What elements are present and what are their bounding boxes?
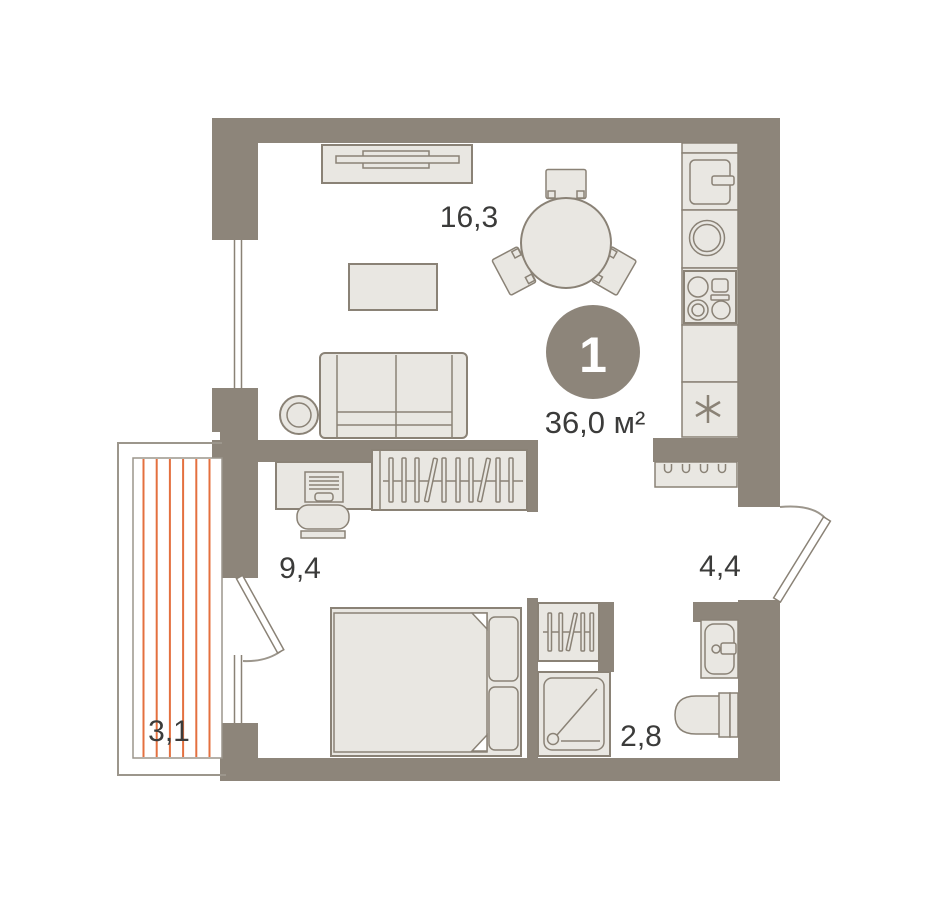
wall-kitchen-hall bbox=[653, 438, 740, 462]
dining-chair-top bbox=[546, 170, 586, 199]
badge-room-count: 1 bbox=[579, 327, 607, 383]
monitor-icon bbox=[305, 472, 343, 502]
wall-right-lower bbox=[738, 600, 780, 781]
bed bbox=[331, 608, 521, 756]
toilet-bowl bbox=[675, 696, 720, 734]
wall-bath-top bbox=[693, 602, 780, 622]
stove-icon bbox=[682, 268, 738, 325]
kitchen-sink-icon bbox=[682, 210, 738, 268]
hallway bbox=[655, 462, 737, 487]
dining-table bbox=[521, 198, 611, 288]
coat-rack bbox=[655, 462, 737, 487]
wall-bedroom-bath bbox=[527, 598, 538, 758]
wall-right-upper bbox=[738, 118, 780, 507]
linen-shelf bbox=[538, 603, 599, 661]
floor-plan-page: 1 36,0 м² 16,3 9,4 4,4 2,8 3,1 bbox=[0, 0, 947, 900]
toilet-icon bbox=[675, 693, 738, 737]
washer-icon bbox=[682, 382, 738, 437]
total-area-label: 36,0 м² bbox=[545, 405, 646, 440]
tv-stand bbox=[322, 145, 472, 183]
toilet-tank bbox=[719, 693, 730, 737]
side-table bbox=[280, 396, 318, 434]
shower bbox=[538, 672, 610, 756]
sofa bbox=[320, 353, 467, 438]
desk-chair-base bbox=[301, 531, 345, 538]
wardrobe bbox=[372, 450, 527, 510]
pillow-top bbox=[489, 617, 518, 681]
balcony-area-label: 3,1 bbox=[148, 715, 190, 748]
kitchen-counter bbox=[682, 325, 738, 382]
coffee-table bbox=[349, 264, 437, 310]
wall-left-top bbox=[212, 118, 258, 240]
bedroom-area-label: 9,4 bbox=[279, 552, 321, 585]
bathroom-area-label: 2,8 bbox=[620, 720, 662, 753]
kitchen-column bbox=[682, 143, 738, 437]
apartment-badge: 1 36,0 м² bbox=[545, 305, 646, 440]
wall-bottom bbox=[220, 758, 780, 781]
wall-shelf-right bbox=[598, 602, 614, 672]
desk-chair bbox=[297, 505, 349, 529]
bed-blanket bbox=[334, 613, 487, 752]
wall-left-low bbox=[220, 723, 258, 758]
wall-bedroom-hall-upper bbox=[527, 448, 538, 512]
washbasin-icon bbox=[701, 620, 738, 678]
hallway-area-label: 4,4 bbox=[699, 550, 741, 583]
fridge-icon bbox=[682, 153, 738, 210]
floor-plan: 1 36,0 м² 16,3 9,4 4,4 2,8 3,1 bbox=[0, 0, 947, 900]
wall-left-mid bbox=[212, 388, 258, 432]
pillow-bottom bbox=[489, 687, 518, 750]
kitchen-counter-top-strip bbox=[682, 143, 738, 153]
living-kitchen-area-label: 16,3 bbox=[440, 201, 498, 234]
wall-top bbox=[212, 118, 780, 143]
